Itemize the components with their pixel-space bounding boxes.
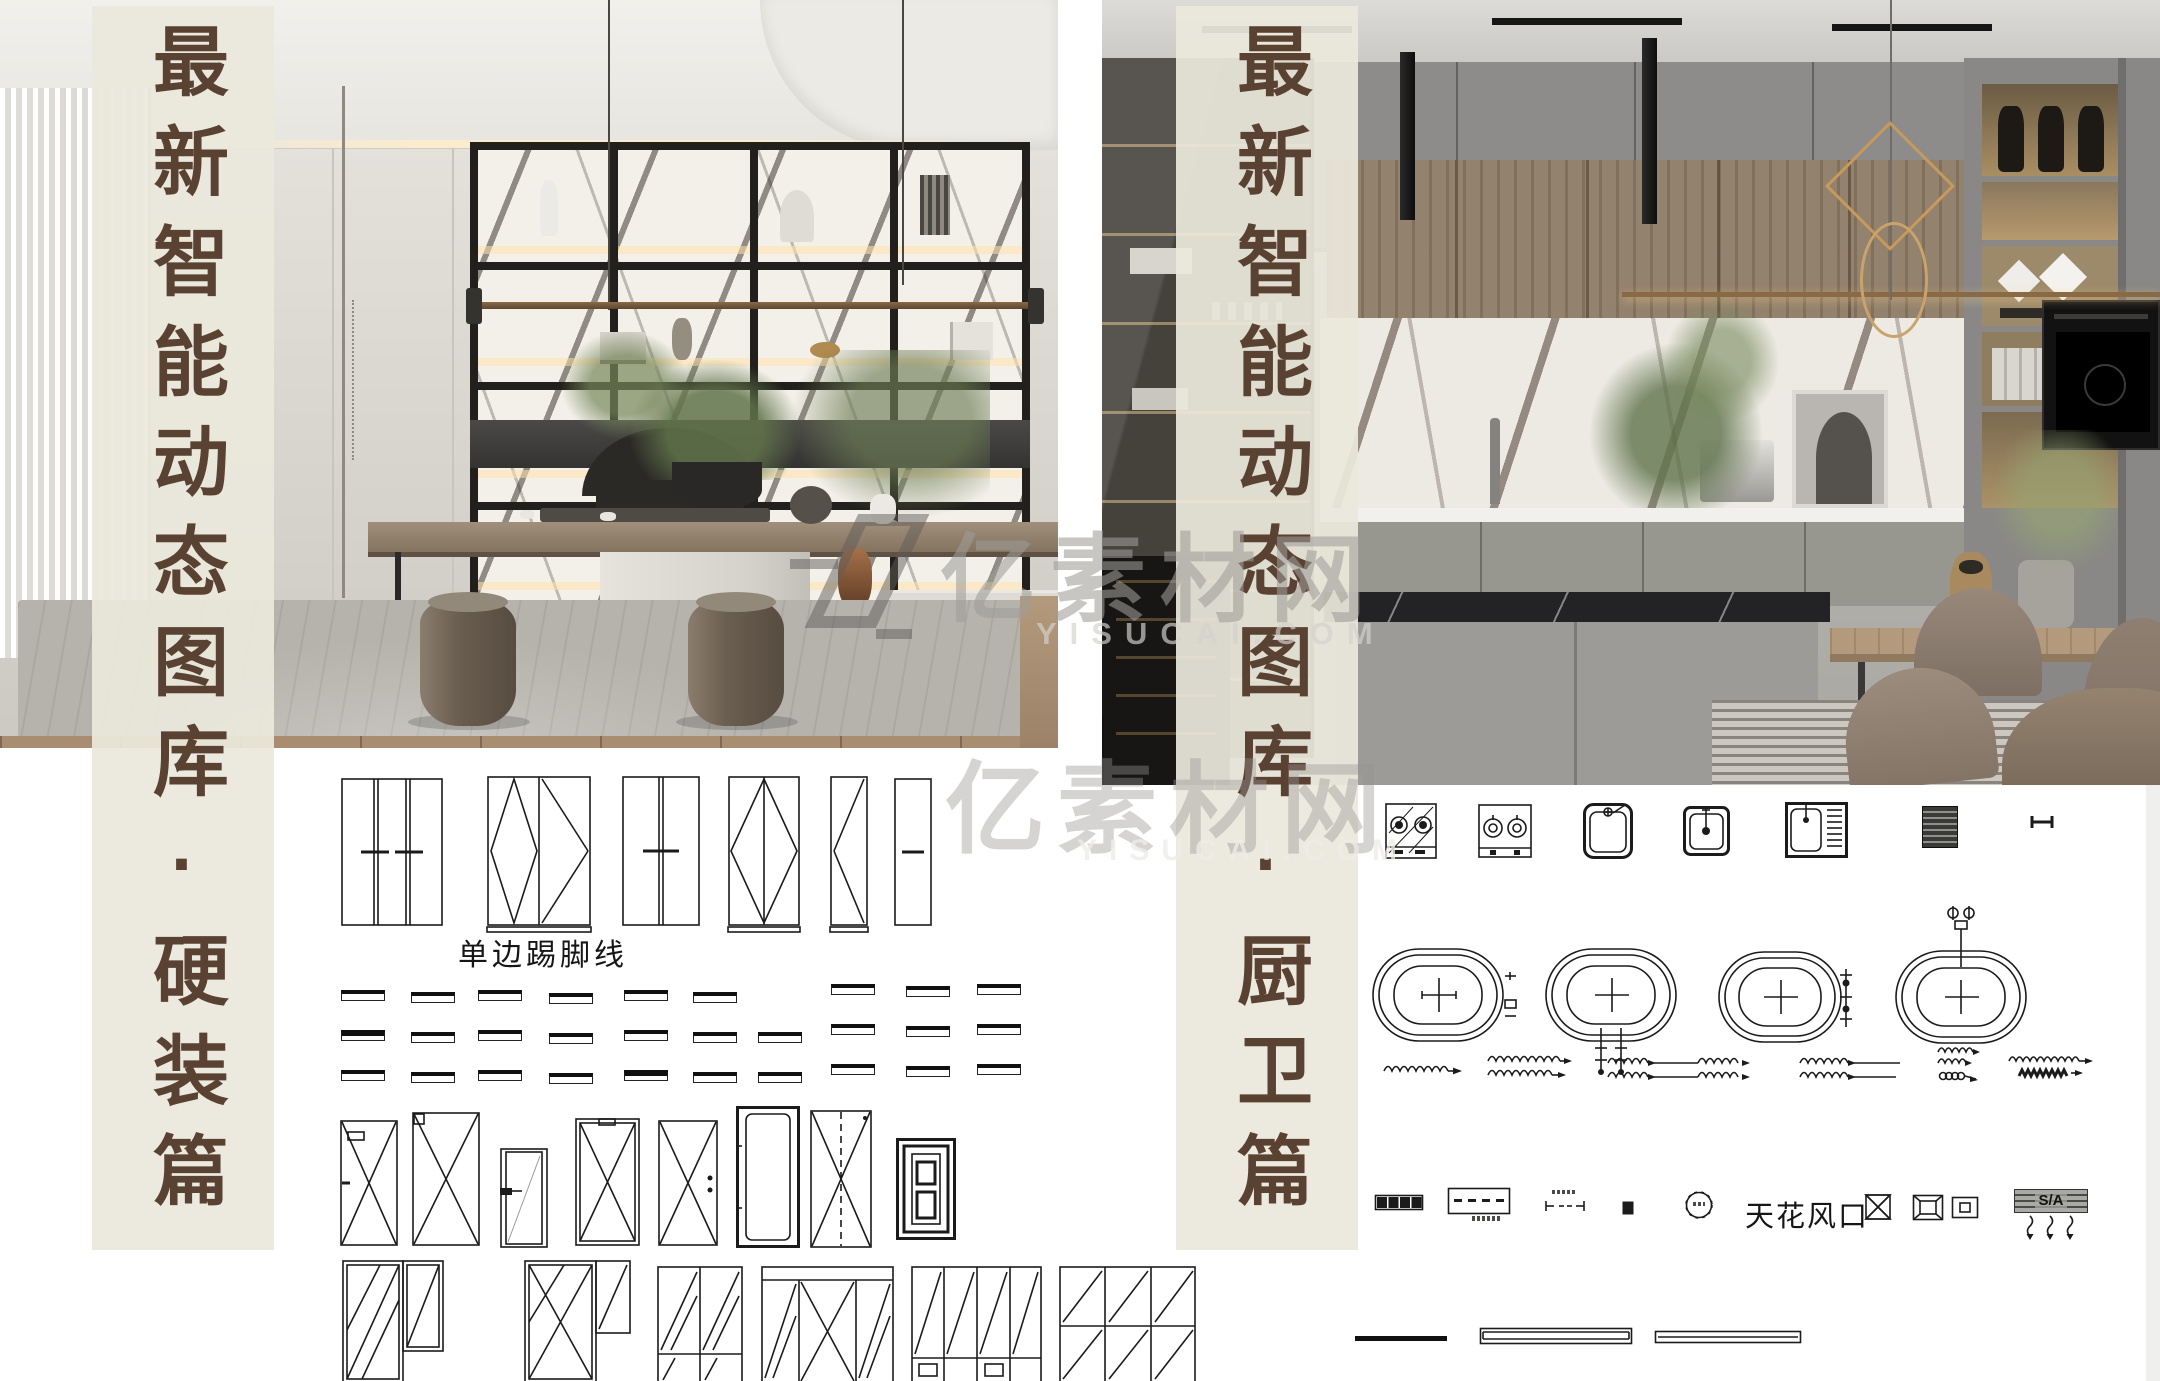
cad-fold-leaf [830, 776, 868, 934]
cad-skirting-bar [831, 1064, 875, 1075]
pendant-oval-ring [1860, 222, 1928, 338]
vase-sprigs [1988, 430, 2118, 575]
cad-door-x2 [575, 1118, 640, 1246]
log-stool-top [428, 592, 508, 612]
cad-folding-door-2 [728, 776, 800, 934]
cad-skirting-bar [549, 1033, 593, 1044]
pendant-bar [472, 302, 1038, 309]
cad-bathtub-faucet-side [1718, 951, 1864, 1045]
tiny-label [1693, 1202, 1705, 1206]
cad-air-flow-arrows [2022, 1215, 2080, 1243]
cad-panel-door [894, 778, 932, 928]
cad-skirting-bar [758, 1032, 802, 1043]
cad-skirting-bar [478, 1030, 522, 1041]
right-panel: 天花风口 S/A [1080, 0, 2160, 1381]
right-edge-strip [2146, 785, 2160, 1381]
cad-skirting-bar [478, 1070, 522, 1081]
cad-bathtub-faucet-right [1372, 948, 1520, 1042]
cad-air-grille: S/A [2014, 1189, 2088, 1213]
wine-bottle [2078, 106, 2104, 172]
built-in-oven [2042, 300, 2160, 450]
floor-lamp-pole [342, 86, 345, 598]
cad-sink-single [1583, 803, 1633, 859]
cad-skirting-bar [624, 1070, 668, 1081]
cad-spotlight-strip [1375, 1194, 1423, 1211]
astronaut-visor [1959, 560, 1983, 574]
cad-skirting-bar [411, 992, 455, 1003]
cad-skirting-bar [977, 984, 1021, 995]
cad-skirting-bar [624, 990, 668, 1001]
cad-window-corner2 [524, 1260, 631, 1381]
cad-skirting-bar [478, 990, 522, 1001]
cad-squiggle-single [1384, 1062, 1470, 1080]
cad-window-corner [342, 1260, 444, 1381]
plant-bowl [672, 462, 762, 508]
cad-skirting-bar [693, 1072, 737, 1083]
countertop [1320, 508, 1992, 522]
cad-sliding-door-2 [622, 776, 700, 926]
tiny-label [1472, 1216, 1500, 1221]
cad-paneled-door-dark [896, 1138, 956, 1240]
cad-squiggle-coil [1938, 1046, 1992, 1084]
cad-skirting-bar [411, 1072, 455, 1083]
tiny-label [1552, 1190, 1576, 1194]
track-light [1832, 24, 1992, 31]
banner-left-text: 最新智能动态图库·硬装篇 [141, 22, 226, 1231]
cad-door-halfx [658, 1120, 718, 1246]
wine-bottle [1998, 106, 2024, 172]
portrait-figure [1816, 412, 1872, 504]
pendant-cylinder [1400, 52, 1415, 220]
banner-right-text: 最新智能动态图库·厨卫篇 [1225, 22, 1310, 1231]
pendant-cap [466, 288, 482, 324]
floor-lamp-chain [352, 300, 354, 460]
skirting-label: 单边踢脚线 [458, 930, 628, 974]
cad-skirting-bar [758, 1072, 802, 1083]
oven-window [2056, 332, 2150, 432]
cad-squiggle-line-squiggle [1608, 1056, 1758, 1084]
cad-skirting-bar [411, 1032, 455, 1043]
cad-frame-vent-small [1952, 1197, 1978, 1218]
cad-skirting-bar [341, 990, 385, 1001]
pendant-cylinder [1642, 38, 1657, 224]
log-stool [420, 598, 516, 726]
cad-gas-stove-hatched [1385, 803, 1437, 859]
cad-sliding-door-1 [341, 778, 443, 930]
banner-kitchen-bath: 最新智能动态图库·厨卫篇 [1176, 6, 1358, 1250]
cad-door-blank-leaf [736, 1106, 800, 1248]
cad-profile-rect-thin [1655, 1331, 1801, 1343]
fern-plant [560, 330, 690, 440]
cad-window-3col [761, 1266, 894, 1381]
cad-dim-symbol [1545, 1198, 1585, 1214]
cad-door-x [340, 1120, 398, 1246]
cad-skirting-bar [693, 1032, 737, 1043]
cad-folding-door-1 [487, 776, 591, 934]
cad-skirting-bar [977, 1024, 1021, 1035]
pendant-cap [1028, 288, 1044, 324]
cad-sink-drainboard [1785, 802, 1848, 858]
log-stool [688, 598, 784, 726]
cad-window-4col [911, 1266, 1042, 1381]
wine-bottle [2038, 106, 2064, 172]
wall-panel-line [332, 148, 334, 618]
island-top [1324, 592, 1830, 622]
banner-hard-decoration: 最新智能动态图库·硬装篇 [92, 6, 274, 1250]
log-stool-top [696, 592, 776, 612]
cad-window-2col [657, 1266, 743, 1381]
niche-wine [1982, 84, 2118, 176]
cad-door-x-dashline [810, 1110, 872, 1248]
cad-sink-small [1683, 806, 1730, 856]
cad-frame-vent [1913, 1195, 1943, 1220]
pendant-cable [902, 0, 904, 285]
oven-fan [2084, 364, 2126, 406]
cad-bathtub-faucet-top [1895, 905, 2027, 1045]
cad-skirting-bar [693, 992, 737, 1003]
cad-skirting-bar [341, 1070, 385, 1081]
cad-access-panel [1865, 1194, 1891, 1220]
left-panel: 单边踢脚线 [0, 0, 1080, 1381]
cad-skirting-bar [549, 993, 593, 1004]
shelf-object-hand [780, 190, 814, 242]
cad-skirting-bar [549, 1073, 593, 1084]
cad-skirting-bar [624, 1030, 668, 1041]
cad-skirting-bar [906, 1026, 950, 1037]
portrait-art [1792, 390, 1888, 508]
cad-skirting-bar [341, 1030, 385, 1041]
ceiling-vent-label: 天花风口 [1745, 1193, 1869, 1235]
track-light [1492, 18, 1682, 25]
cad-floor-drain [1922, 806, 1958, 848]
cad-squiggle-tail [1800, 1056, 1904, 1084]
cad-light-trough [1448, 1188, 1510, 1214]
poster-stage: 单边踢脚线 [0, 0, 2160, 1381]
cad-thick-line [1355, 1336, 1447, 1341]
tea-tray [540, 508, 770, 522]
shelf-object-knives [920, 175, 950, 235]
cad-pipe-fitting [2030, 815, 2054, 829]
faucet [1490, 418, 1500, 504]
cad-skirting-bar [906, 1066, 950, 1077]
cad-skirting-bar [977, 1064, 1021, 1075]
oven-handle [2054, 314, 2148, 319]
floor-wedge [1020, 596, 1058, 748]
teacup [520, 510, 534, 519]
niche-empty [1982, 182, 2118, 240]
green-plant [1662, 296, 1782, 426]
cad-skirting-bar [831, 984, 875, 995]
cad-small-switch [1622, 1201, 1634, 1215]
cad-squiggle-double [1488, 1054, 1578, 1082]
island-panel-gap [1574, 622, 1577, 785]
white-jar [870, 494, 896, 524]
cad-squiggle-hatch [2009, 1054, 2097, 1084]
teacup [600, 512, 616, 521]
cad-skirting-bar [831, 1024, 875, 1035]
pendant-cable [608, 0, 610, 310]
teapot [790, 486, 832, 524]
cad-gas-stove [1478, 804, 1532, 858]
cad-glass-door [500, 1148, 548, 1248]
air-supply-label: S/A [2035, 1192, 2066, 1209]
cad-profile-rect [1480, 1328, 1632, 1344]
cad-door-x-tall [412, 1112, 480, 1246]
shelf-object-figurine [540, 180, 558, 236]
cad-skirting-bar [906, 986, 950, 997]
